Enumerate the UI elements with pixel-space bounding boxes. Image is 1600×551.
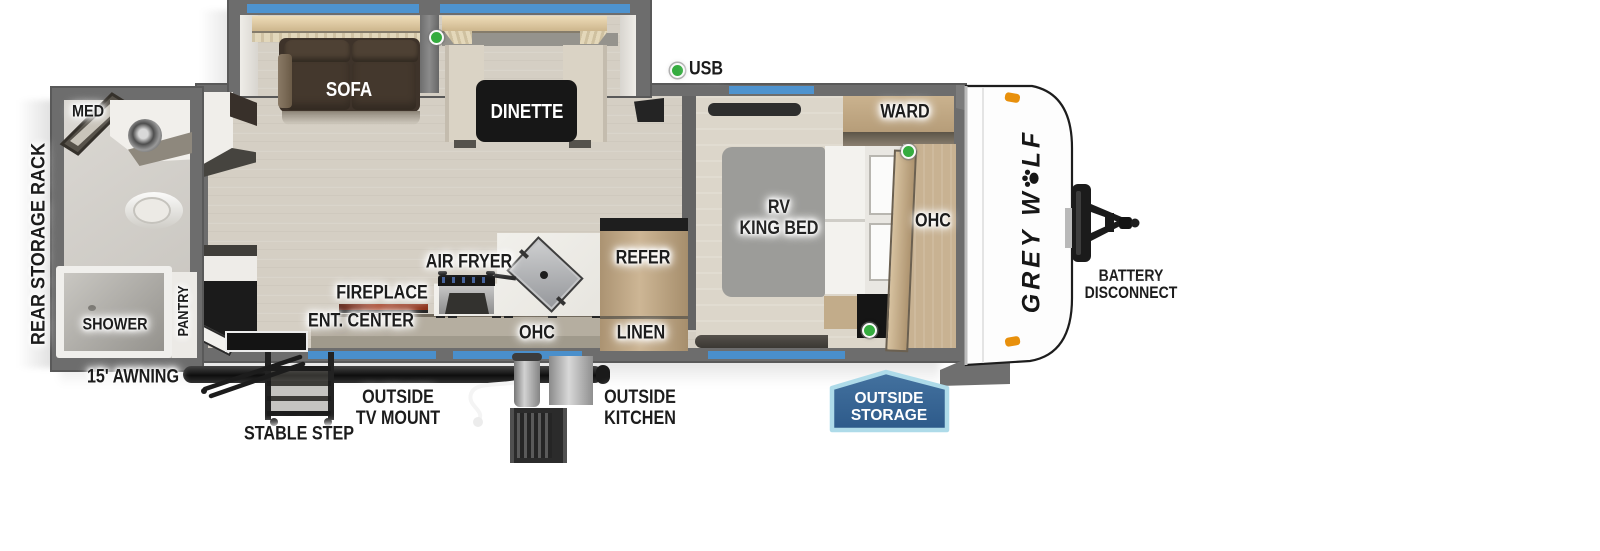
svg-text:STORAGE: STORAGE bbox=[851, 407, 927, 424]
svg-text:OUTSIDE: OUTSIDE bbox=[855, 390, 924, 407]
